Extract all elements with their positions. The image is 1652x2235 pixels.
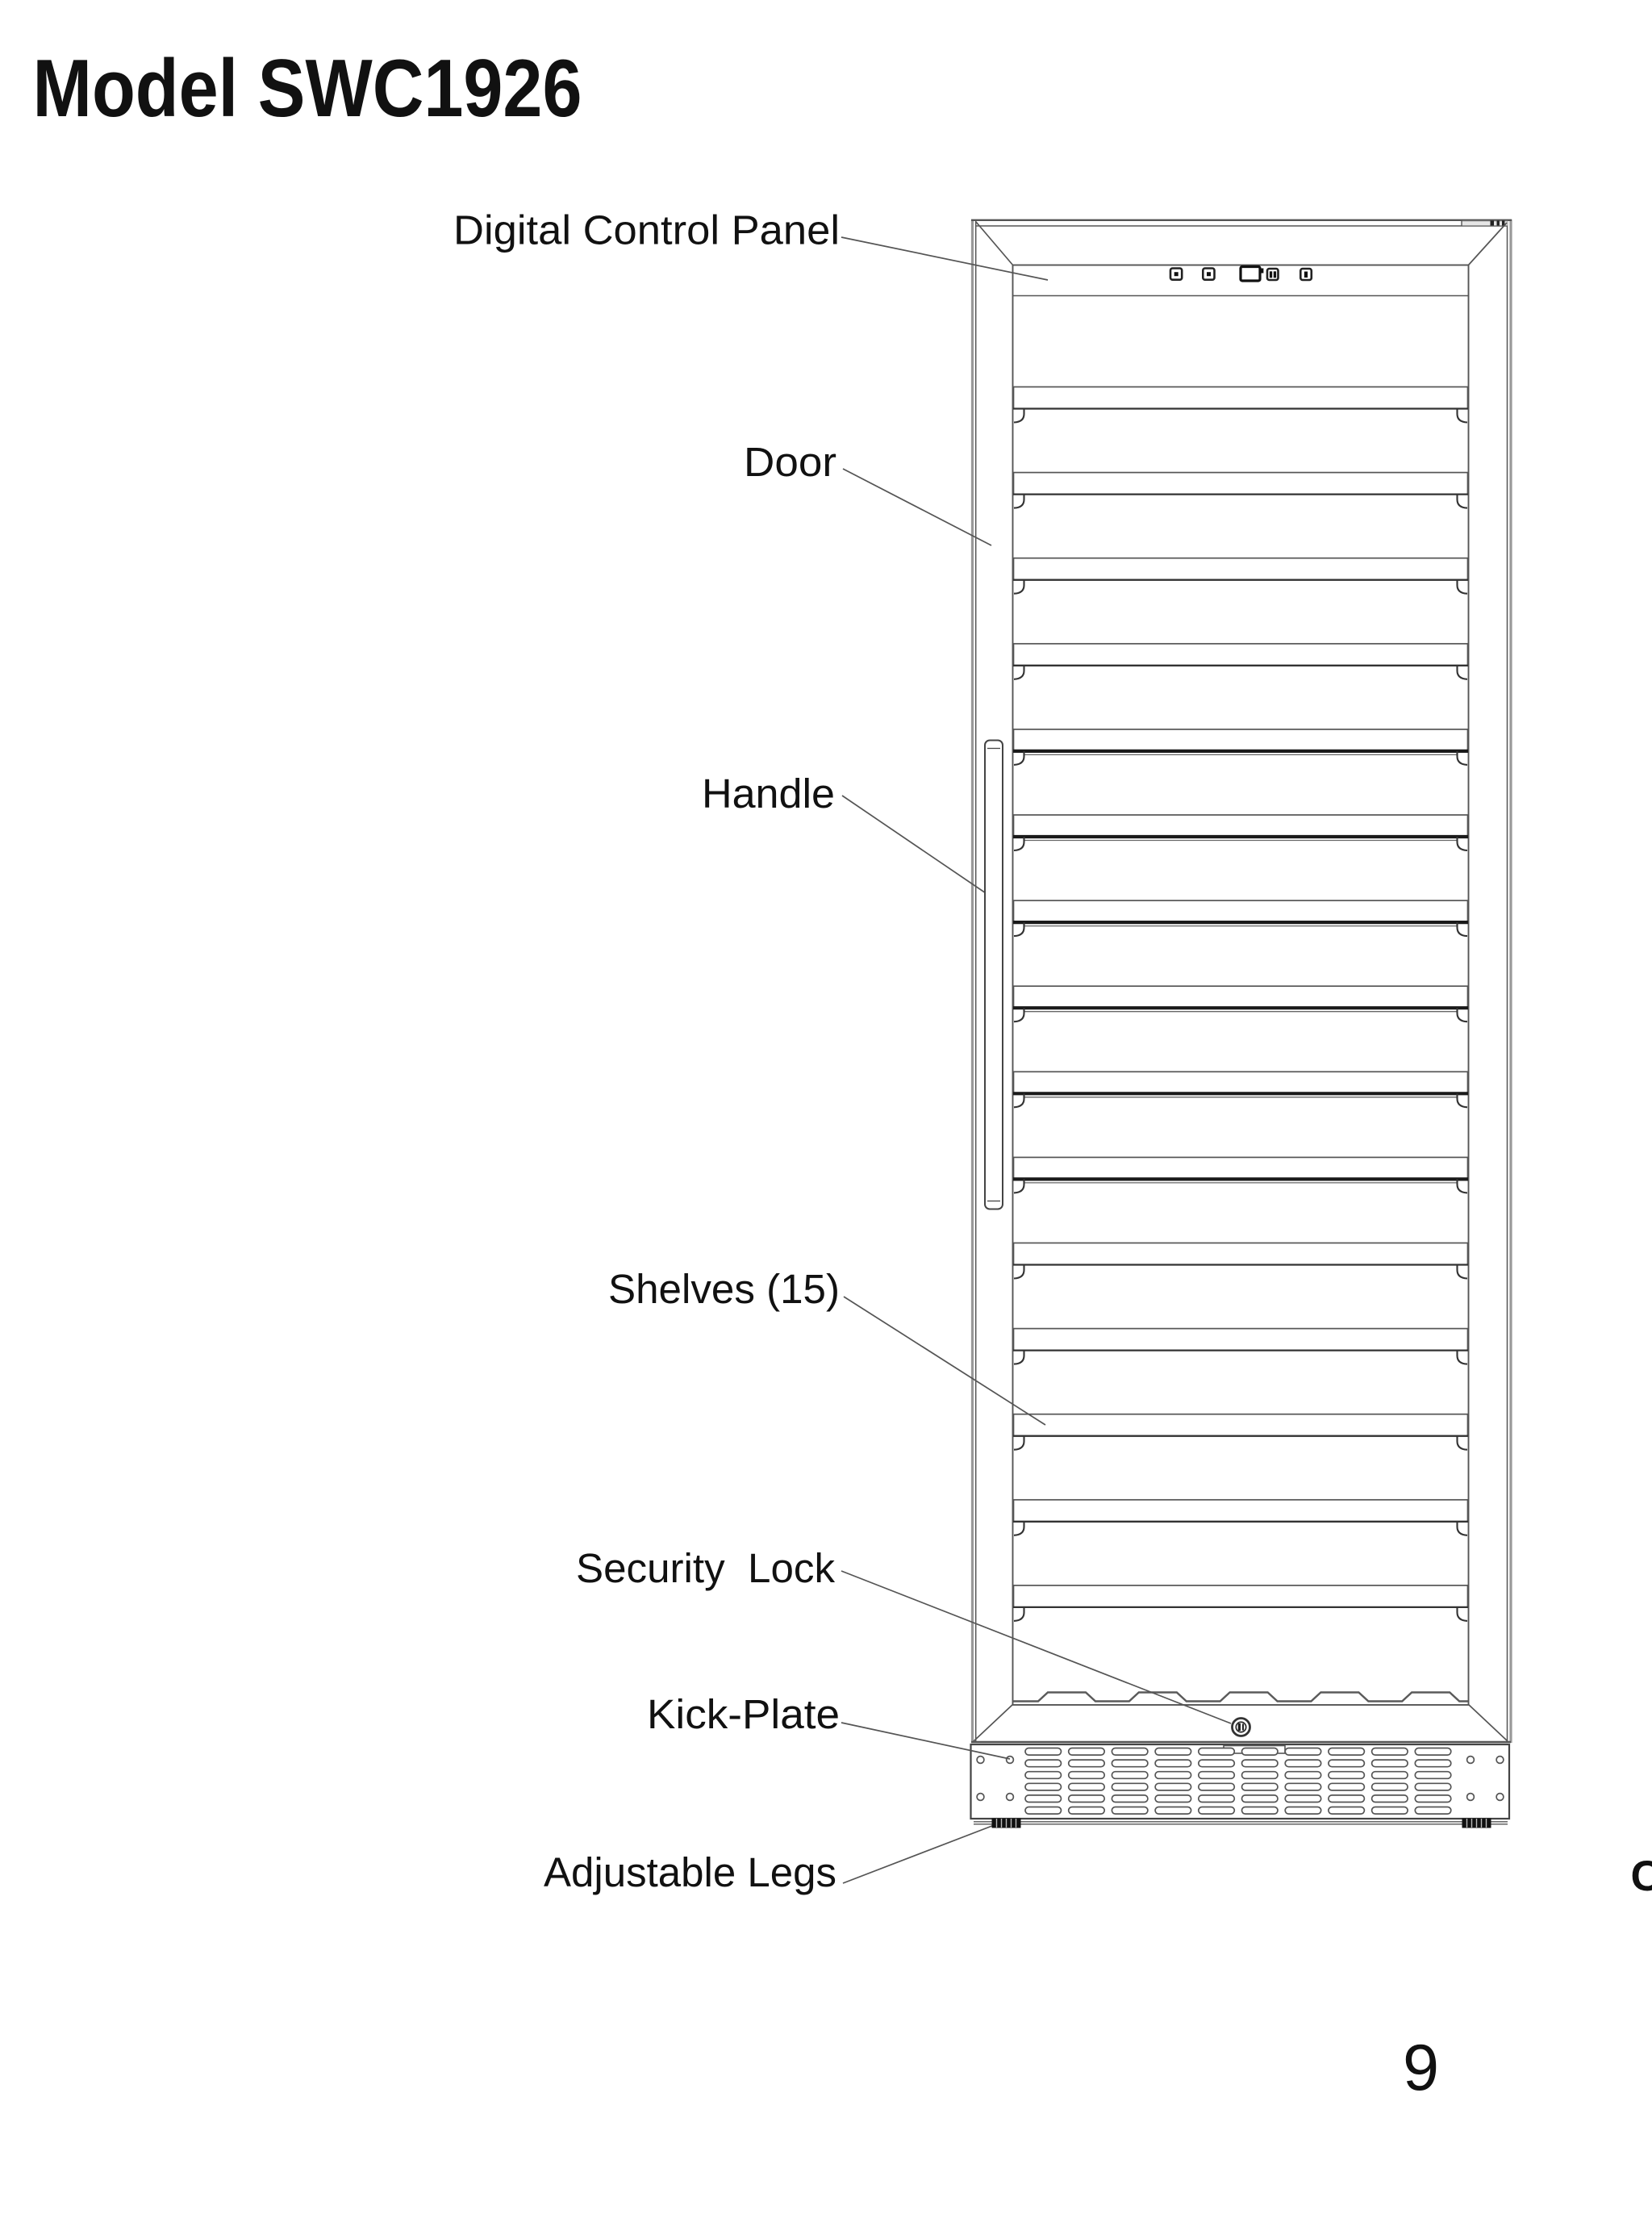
svg-text:Shelves (15): Shelves (15) — [608, 1266, 840, 1312]
svg-text:9: 9 — [1403, 2032, 1439, 2104]
svg-text:Model SWC1926: Model SWC1926 — [33, 44, 582, 134]
svg-text:Security Lock: Security Lock — [576, 1545, 835, 1591]
svg-text:Door: Door — [744, 439, 836, 485]
svg-text:Handle: Handle — [702, 771, 835, 817]
svg-text:Kick-Plate: Kick-Plate — [647, 1691, 840, 1737]
svg-text:Adjustable Legs: Adjustable Legs — [544, 1849, 836, 1895]
svg-text:Digital Control Panel: Digital Control Panel — [453, 207, 840, 253]
svg-text:C: C — [1631, 1853, 1652, 1900]
